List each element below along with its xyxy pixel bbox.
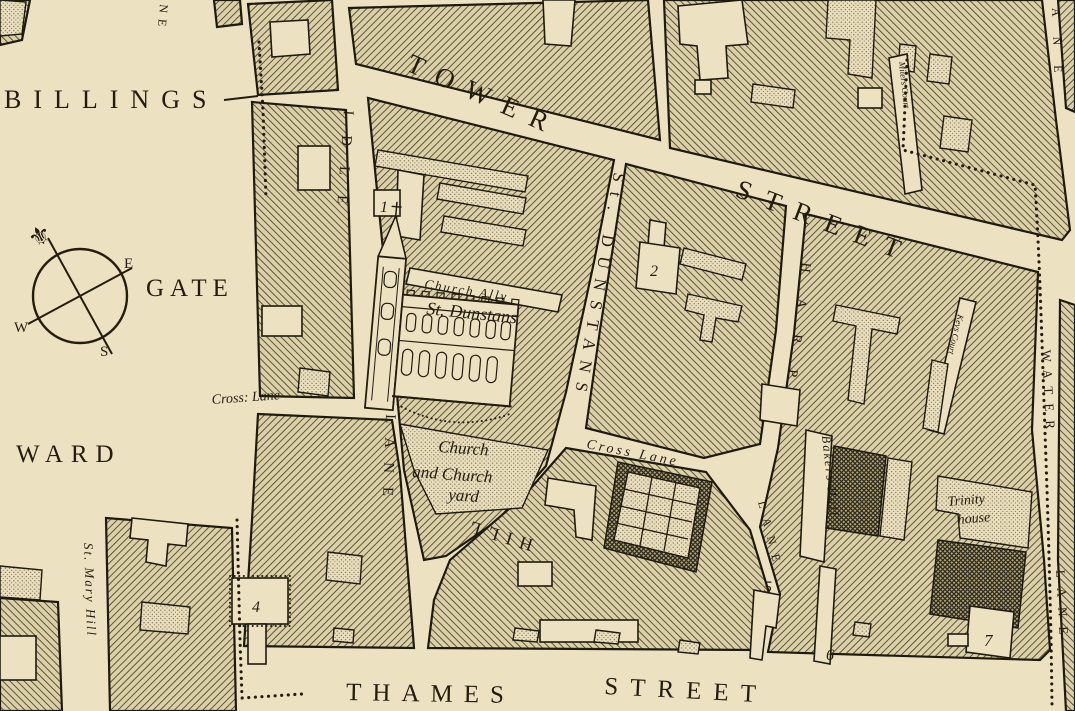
courtyard [540,620,638,642]
compass-south-label: S [100,344,108,360]
courtyard [695,80,711,94]
compass-east-label: E [124,256,133,272]
reference-number-4: 4 [252,599,260,616]
courtyard [270,20,310,57]
street-label-thames: THAMES [346,679,515,709]
courtyard [858,88,882,108]
stippled-patch [140,602,190,634]
place-label-churchyard-1: Church [438,437,490,459]
reference-number-2: 2 [650,263,658,280]
place-label-trinity-2: house [957,510,991,528]
street-label-lane-partial-top-left: NE [155,4,171,33]
city-block [214,0,242,27]
stippled-patch [298,368,330,396]
place-label-churchyard-3: yard [446,485,480,506]
courtyard [298,146,330,190]
street-label-lane-partial-top-right: ANE [1049,8,1066,93]
stippled-building [333,628,354,643]
courtyard [518,562,552,586]
reference-number-1: 1 [380,199,388,216]
stippled-building [678,640,700,654]
stippled-building [594,630,620,644]
passage [248,624,266,664]
stippled-patch [0,566,42,600]
numbered-court-4 [232,578,288,624]
compass-west-label: W [14,320,29,336]
stippled-patch [326,552,362,584]
ward-label-ward: WARD [16,441,122,468]
courtyard [262,306,302,336]
passage [948,634,968,646]
map-canvas: ⚜ E W S BILLINGS GATE WARD TOWER STREET … [0,0,1075,711]
stippled-building [940,116,972,152]
ward-label-billings: BILLINGS [4,85,218,114]
numbered-court-2 [636,242,680,294]
street-label-idle-lane: LANE [379,414,398,510]
courtyard [0,636,36,680]
reference-number-6: 6 [826,647,834,664]
courtyard [543,0,575,46]
stippled-building [853,622,871,637]
stippled-building [513,628,539,642]
stippled-patch [0,0,26,36]
ward-label-gate: GATE [146,275,234,302]
antique-map-tower-street-ward: ⚜ E W S BILLINGS GATE WARD TOWER STREET … [0,0,1075,711]
reference-number-5: 5 [764,579,772,596]
stippled-building [927,54,952,84]
